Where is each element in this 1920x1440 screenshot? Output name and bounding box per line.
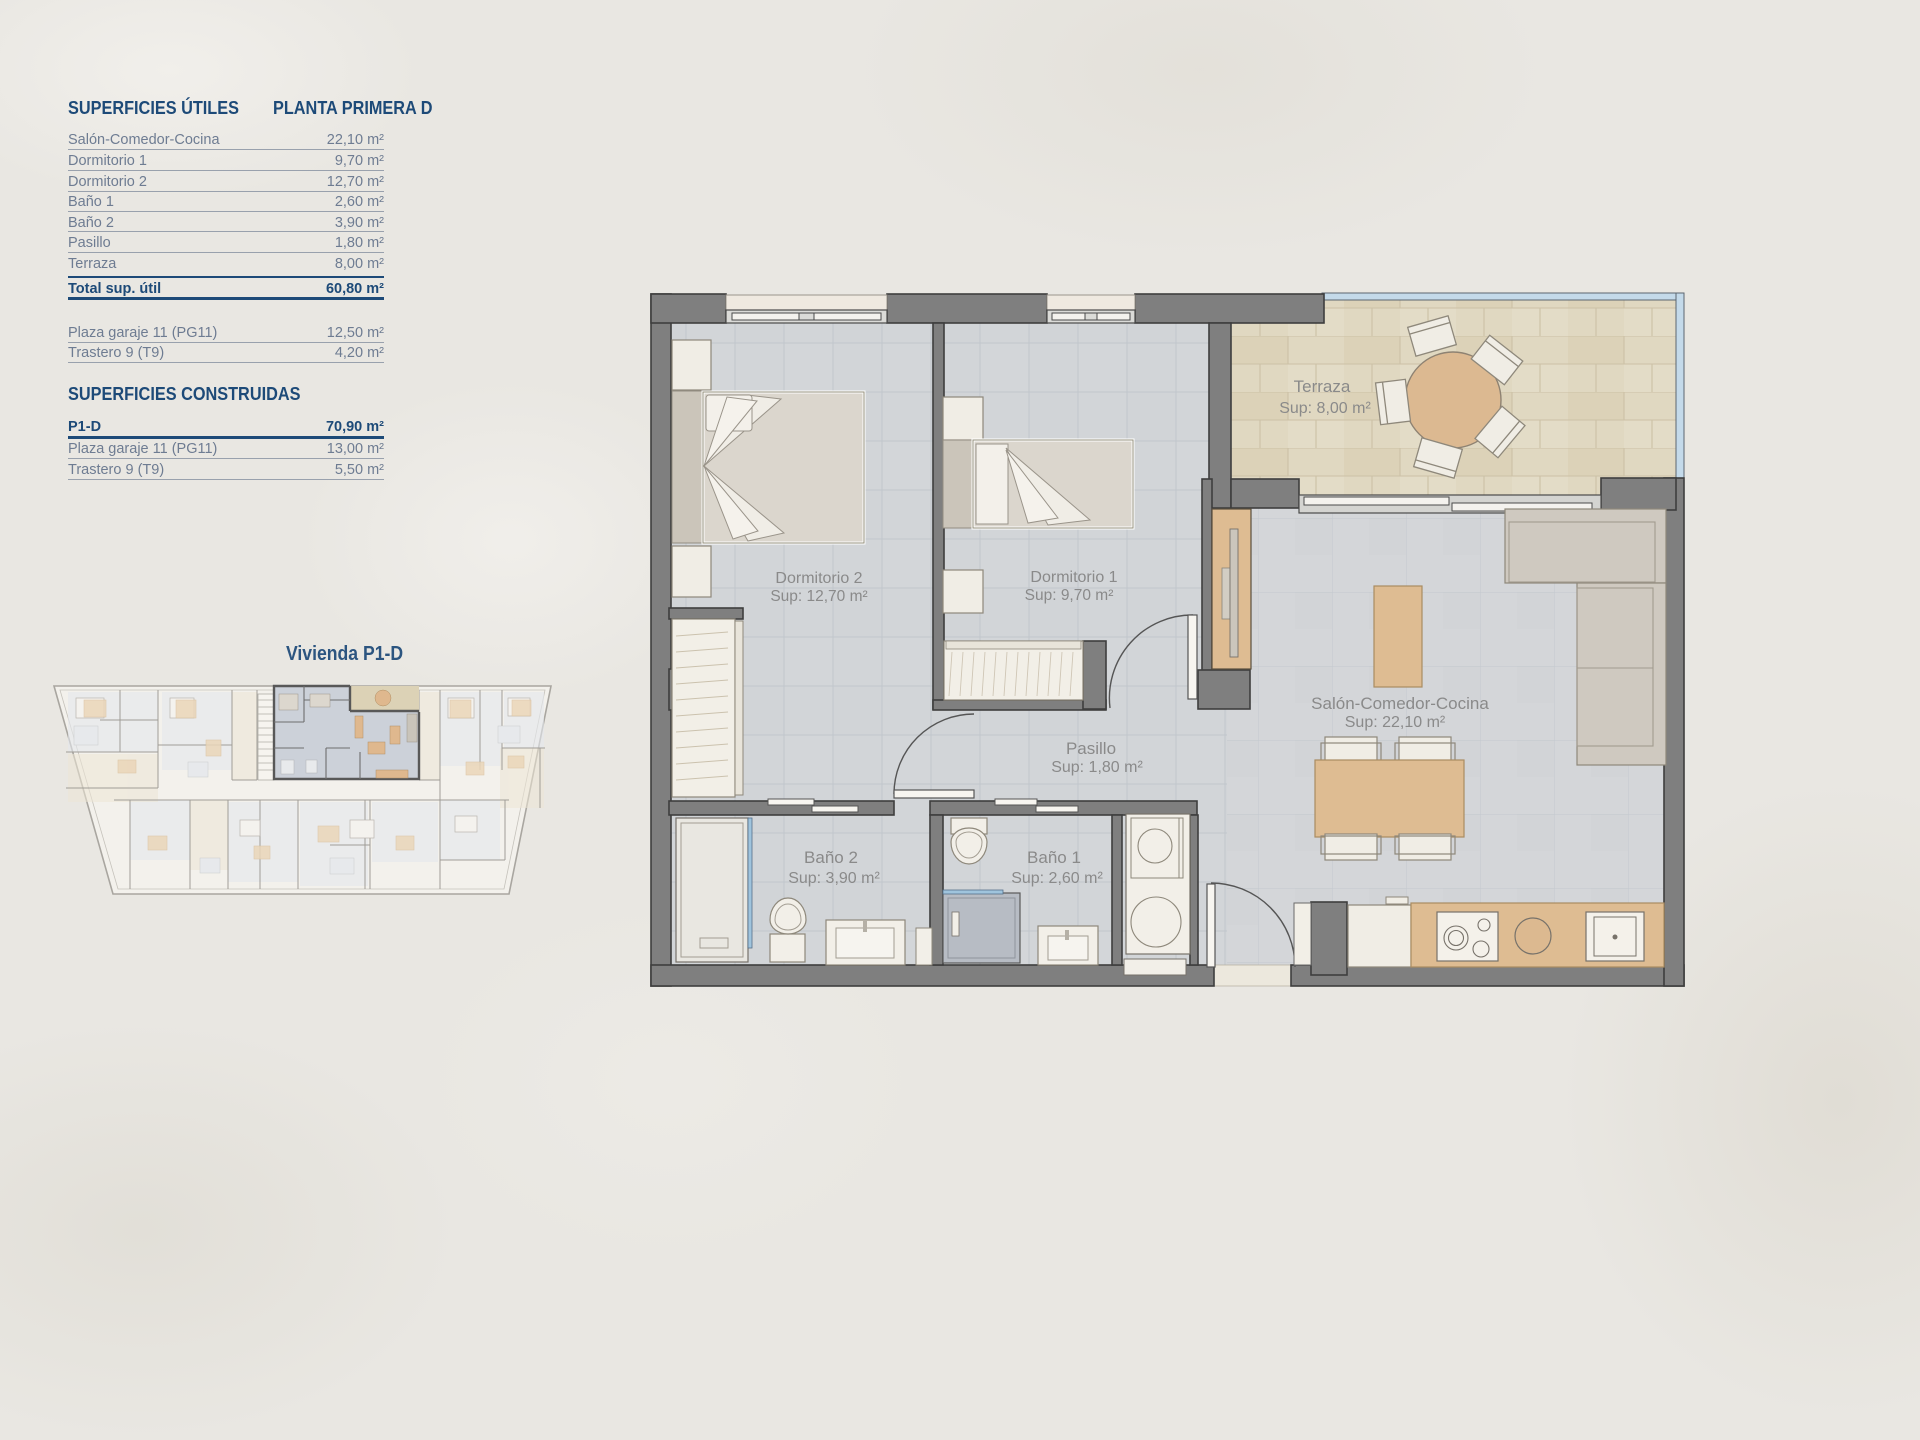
svg-text:Sup: 2,60 m²: Sup: 2,60 m² (1011, 870, 1103, 887)
svg-text:Sup: 9,70 m²: Sup: 9,70 m² (1025, 587, 1114, 604)
svg-text:Baño 1: Baño 1 (1027, 848, 1081, 867)
svg-text:Sup: 12,70 m²: Sup: 12,70 m² (770, 588, 867, 605)
svg-text:Dormitorio 2: Dormitorio 2 (775, 570, 862, 587)
svg-text:Salón-Comedor-Cocina: Salón-Comedor-Cocina (1311, 694, 1489, 713)
svg-text:Pasillo: Pasillo (1066, 739, 1116, 758)
svg-text:Baño 2: Baño 2 (804, 848, 858, 867)
svg-text:Sup: 3,90 m²: Sup: 3,90 m² (788, 870, 880, 887)
svg-text:Sup: 22,10 m²: Sup: 22,10 m² (1345, 714, 1446, 731)
svg-text:Sup: 1,80 m²: Sup: 1,80 m² (1051, 759, 1143, 776)
svg-text:Dormitorio 1: Dormitorio 1 (1030, 569, 1117, 586)
svg-text:Terraza: Terraza (1294, 377, 1351, 396)
svg-text:Sup: 8,00 m²: Sup: 8,00 m² (1279, 400, 1371, 417)
